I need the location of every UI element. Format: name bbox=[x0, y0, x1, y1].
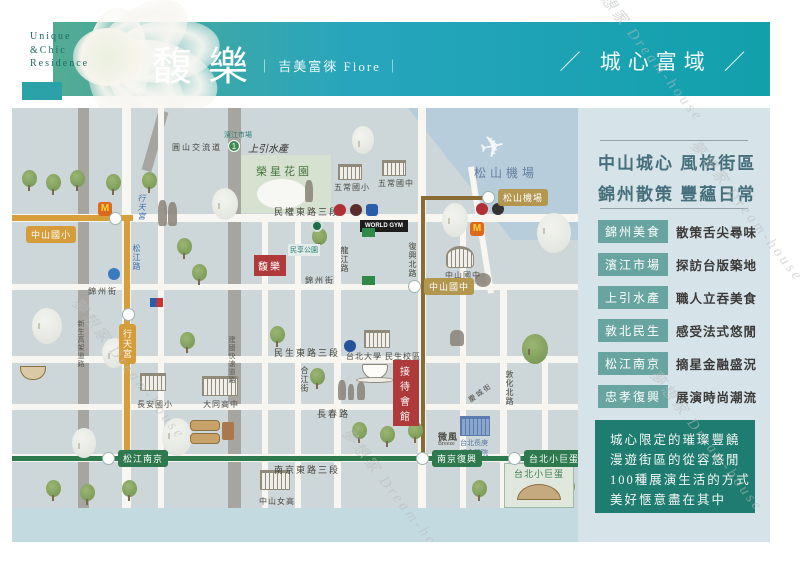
couple-illustration bbox=[168, 202, 177, 226]
item-badge: 濱江市場 bbox=[598, 253, 668, 276]
divider-line bbox=[600, 140, 748, 141]
minxiang-park-label: 民享公園 bbox=[288, 244, 320, 256]
dimsum-steamer-illustration bbox=[190, 418, 220, 444]
project-title: 馥樂 bbox=[152, 34, 264, 92]
tree-icon bbox=[192, 264, 207, 281]
mrt-logo-icon bbox=[122, 308, 135, 321]
station-label: 松山機場 bbox=[498, 189, 548, 206]
bank-logo-icon bbox=[334, 204, 346, 216]
road-label-nanjing: 南京東路三段 bbox=[274, 463, 340, 476]
tree-icon bbox=[32, 308, 62, 344]
station-xingtian-temple: 行天宮 bbox=[119, 324, 136, 364]
tree-icon bbox=[80, 484, 95, 501]
station-zhongshan-junior-high: 中山國中 bbox=[408, 278, 474, 295]
road-label-minsheng: 民生東路三段 bbox=[274, 346, 340, 359]
tree-icon bbox=[352, 422, 367, 439]
road-label-fuxing: 復興北路 bbox=[407, 242, 418, 278]
road-label-jianguo: 建國快速道路 bbox=[227, 336, 237, 384]
mcdonalds-icon: M bbox=[470, 222, 484, 236]
road-label-yuanshan: 圓山交流道 bbox=[172, 142, 222, 153]
datong-high-school-label: 大同高中 bbox=[203, 399, 239, 410]
sidebar-footer-box: 城心限定的璀璨豐饒 漫遊街區的從容悠閒 100種展演生活的方式 美好愜意盡在其中 bbox=[595, 420, 755, 513]
item-desc: 探訪台版築地 bbox=[676, 255, 757, 274]
sidebar-item-jinzhou-food: 錦州美食 散策舌尖尋味 bbox=[598, 220, 757, 243]
item-badge: 錦州美食 bbox=[598, 220, 668, 243]
item-badge: 松江南京 bbox=[598, 352, 668, 375]
mrt-logo-icon bbox=[508, 452, 521, 465]
footer-line: 美好愜意盡在其中 bbox=[610, 490, 755, 510]
station-label: 中山國小 bbox=[26, 226, 76, 243]
heading-line: 中山城心 風格街區 bbox=[598, 148, 756, 179]
header-tagline: ／ 城心富域 ／ bbox=[560, 46, 753, 76]
heading-line: 錦州散策 豐蘊日常 bbox=[598, 179, 756, 210]
rongxing-park-label: 榮星花園 bbox=[237, 155, 331, 179]
tree-icon bbox=[22, 170, 37, 187]
tree-icon bbox=[522, 334, 548, 364]
tree-icon bbox=[442, 203, 468, 237]
station-zhongshan-elementary: 中山國小 bbox=[26, 226, 76, 243]
tree-icon bbox=[70, 170, 85, 187]
road-label-xinsheng: 新生高架道路 bbox=[76, 320, 86, 368]
sidebar-heading: 中山城心 風格街區 錦州散策 豐蘊日常 bbox=[598, 148, 756, 211]
area-map: ✈ 松山機場 榮星花園 民 bbox=[12, 108, 578, 542]
mrt-logo-icon bbox=[109, 212, 122, 225]
item-desc: 展演時尚潮流 bbox=[676, 387, 757, 406]
yuanshan-ramp bbox=[142, 110, 169, 172]
tree-icon bbox=[180, 332, 195, 349]
drink-cup-illustration bbox=[222, 422, 234, 440]
mrt-logo-icon bbox=[408, 280, 421, 293]
tree-icon bbox=[537, 213, 571, 253]
wuchang-junior-high-label: 五常國中 bbox=[378, 178, 414, 189]
tree-icon bbox=[177, 238, 192, 255]
wuchang-elementary-label: 五常國小 bbox=[334, 182, 370, 193]
family-illustration bbox=[348, 384, 354, 400]
changan-elementary-label: 長安國小 bbox=[137, 399, 173, 410]
tree-icon bbox=[142, 172, 157, 189]
flyer-page: Unique &Chic Residence 馥樂 ｜ 吉美富徠 Flore ｜… bbox=[0, 0, 800, 565]
mrt-logo-icon bbox=[102, 452, 115, 465]
sidebar-item-shangyin: 上引水產 職人立吞美食 bbox=[598, 286, 757, 309]
station-label: 中山國中 bbox=[424, 278, 474, 295]
tree-icon bbox=[46, 480, 61, 497]
mrt-logo-icon bbox=[416, 452, 429, 465]
item-desc: 摘星金融盛況 bbox=[676, 354, 757, 373]
mrt-brown-line-v bbox=[421, 196, 425, 456]
tree-icon bbox=[380, 426, 395, 443]
road-label-changchun: 長春路 bbox=[317, 407, 350, 420]
tree-icon bbox=[472, 480, 487, 497]
station-label: 南京復興 bbox=[432, 450, 482, 467]
arena-dome-icon bbox=[517, 484, 561, 500]
road-label-longjiang: 龍江路 bbox=[339, 246, 350, 273]
station-songjiang-nanjing: 松江南京 bbox=[102, 450, 168, 467]
zhongshan-girls-hs-label: 中山女高 bbox=[259, 496, 295, 507]
px-mart-icon bbox=[362, 228, 375, 237]
coffee-cup-illustration bbox=[362, 364, 394, 383]
px-mart-icon bbox=[362, 276, 375, 285]
taipei-arena-block: 台北小巨蛋 bbox=[504, 463, 574, 508]
divider-line bbox=[600, 208, 748, 209]
mrt-logo-icon bbox=[482, 191, 495, 204]
breeze-en-label: Breeze bbox=[438, 441, 455, 447]
pedestrian-illustration bbox=[305, 180, 313, 202]
footer-line: 城心限定的璀璨豐饒 bbox=[610, 430, 755, 450]
road-minor-1 bbox=[158, 108, 164, 508]
tree-icon bbox=[212, 188, 238, 220]
road-label-hejiang: 合江街 bbox=[299, 366, 310, 393]
item-desc: 職人立吞美食 bbox=[676, 288, 757, 307]
zhongshan-junior-high-building bbox=[446, 246, 474, 268]
ntpu-campus-building bbox=[364, 330, 390, 348]
info-sidebar: 中山城心 風格街區 錦州散策 豐蘊日常 錦州美食 散策舌尖尋味 濱江市場 探訪台… bbox=[578, 108, 770, 542]
tree-icon bbox=[106, 174, 121, 191]
tree-icon bbox=[310, 368, 325, 385]
item-badge: 上引水產 bbox=[598, 286, 668, 309]
jianguo-expressway bbox=[228, 108, 241, 508]
tree-icon bbox=[46, 174, 61, 191]
riverside-band bbox=[12, 508, 578, 542]
road-label-jinzhou-east: 錦州街 bbox=[305, 275, 335, 286]
seated-figure-illustration bbox=[450, 330, 464, 346]
sidebar-item-binjiang-market: 濱江市場 探訪台版築地 bbox=[598, 253, 757, 276]
binjiang-market-label: 濱江市場 bbox=[224, 130, 252, 140]
logo-line: Unique bbox=[30, 30, 89, 44]
mrt-brown-line-h bbox=[421, 196, 487, 200]
item-badge: 敦北民生 bbox=[598, 319, 668, 342]
shop-logo-icon bbox=[344, 340, 356, 352]
airport-area-label: 松山機場 bbox=[474, 164, 538, 181]
sidebar-item-songjiang-nanjing: 松江南京 摘星金融盛況 bbox=[598, 352, 757, 375]
starbucks-icon bbox=[311, 220, 323, 232]
station-nanjing-fuxing: 南京復興 bbox=[416, 450, 482, 467]
road-label-songjiang: 松江路 bbox=[131, 244, 142, 271]
family-illustration bbox=[357, 382, 365, 400]
station-label: 行天宮 bbox=[119, 324, 136, 364]
road-label-qingcheng: 慶城街 bbox=[467, 381, 495, 405]
logo-line: Residence bbox=[30, 57, 89, 71]
bank-logo-icon bbox=[366, 204, 378, 216]
couple-illustration bbox=[158, 200, 167, 226]
reception-hall-badge: 接待 會館 bbox=[393, 360, 419, 426]
tree-icon bbox=[270, 326, 285, 343]
tree-icon bbox=[72, 428, 96, 458]
project-site-badge: 馥樂 bbox=[254, 255, 286, 276]
tree-icon bbox=[122, 480, 137, 497]
xingtian-temple-label: 行天宮 bbox=[136, 194, 147, 221]
road-label-minquan: 民權東路三段 bbox=[274, 205, 340, 218]
reception-line: 接待 bbox=[397, 363, 415, 393]
metro-exit-icon bbox=[108, 268, 120, 280]
wuchang-elementary-building bbox=[338, 164, 362, 180]
project-subtitle: ｜ 吉美富徠 Flore ｜ bbox=[258, 56, 401, 75]
station-label: 松江南京 bbox=[118, 450, 168, 467]
chang-gung-hospital-building bbox=[460, 416, 490, 436]
changan-elementary-building bbox=[140, 373, 166, 391]
road-label-dunhua: 敦化北路 bbox=[504, 370, 515, 406]
sidebar-item-zhongxiao-fuxing: 忠孝復興 展演時尚潮流 bbox=[598, 385, 757, 408]
station-songshan-airport: 松山機場 bbox=[482, 189, 548, 206]
bank-logo-icon bbox=[350, 204, 362, 216]
shangyin-seafood-label: 上引水產 bbox=[248, 140, 288, 155]
footer-line: 100種展演生活的方式 bbox=[610, 470, 755, 490]
reception-line: 會館 bbox=[397, 393, 415, 423]
highway-1-shield: 1 bbox=[228, 140, 240, 152]
noodle-bowl-illustration bbox=[20, 366, 46, 380]
item-desc: 感受法式悠閒 bbox=[676, 321, 757, 340]
item-badge: 忠孝復興 bbox=[598, 385, 668, 408]
tree-icon bbox=[352, 126, 374, 154]
station-label: 台北小巨蛋 bbox=[524, 450, 578, 467]
logo-line: &Chic bbox=[30, 44, 89, 58]
wuchang-junior-high-building bbox=[382, 160, 406, 176]
footer-line: 漫遊街區的從容悠閒 bbox=[610, 450, 755, 470]
sidebar-item-dunbei: 敦北民生 感受法式悠閒 bbox=[598, 319, 757, 342]
carrefour-icon bbox=[150, 298, 163, 307]
accent-block bbox=[22, 82, 62, 100]
family-illustration bbox=[338, 380, 346, 400]
station-taipei-arena: 台北小巨蛋 bbox=[508, 450, 578, 467]
brand-logo: Unique &Chic Residence bbox=[30, 30, 89, 71]
road-label-jinzhou-west: 錦州街 bbox=[88, 286, 118, 297]
item-desc: 散策舌尖尋味 bbox=[676, 222, 757, 241]
